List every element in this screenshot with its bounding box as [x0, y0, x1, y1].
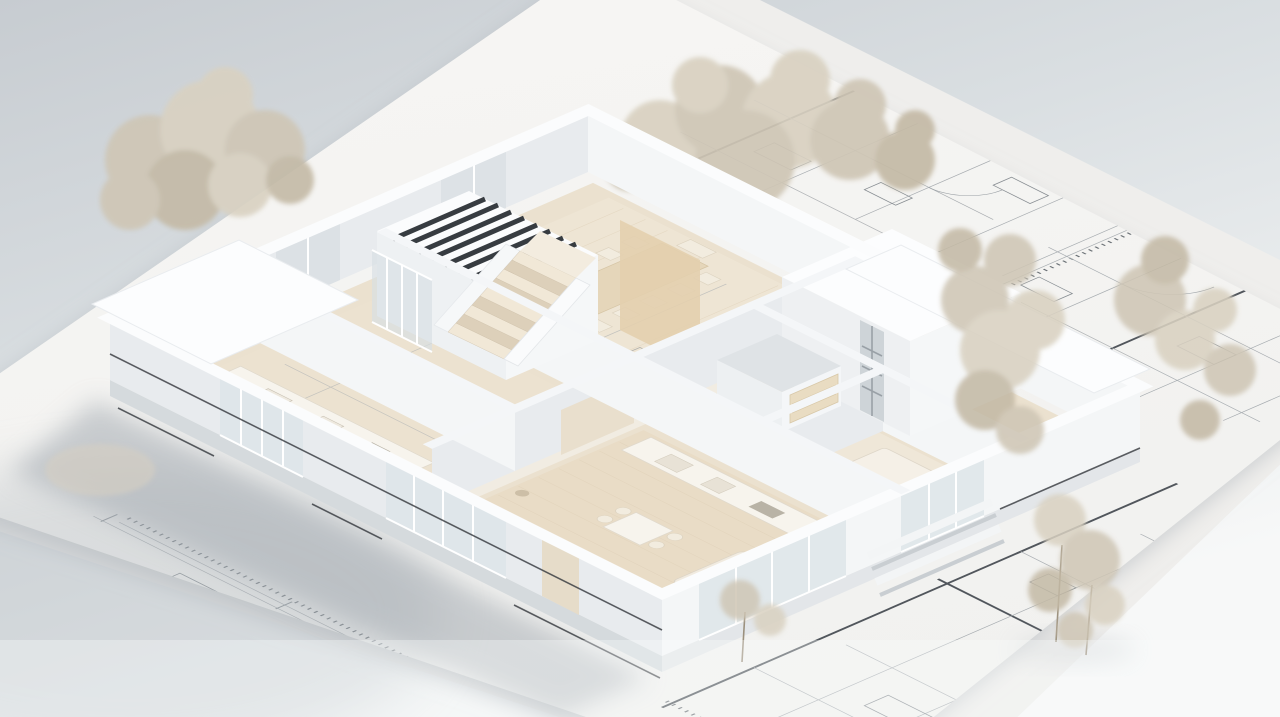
architectural-render-figure: [0, 0, 1280, 717]
dried-grass-left: [45, 444, 155, 496]
render-scene: [0, 0, 1280, 717]
foreground-light-wash: [0, 640, 1280, 717]
